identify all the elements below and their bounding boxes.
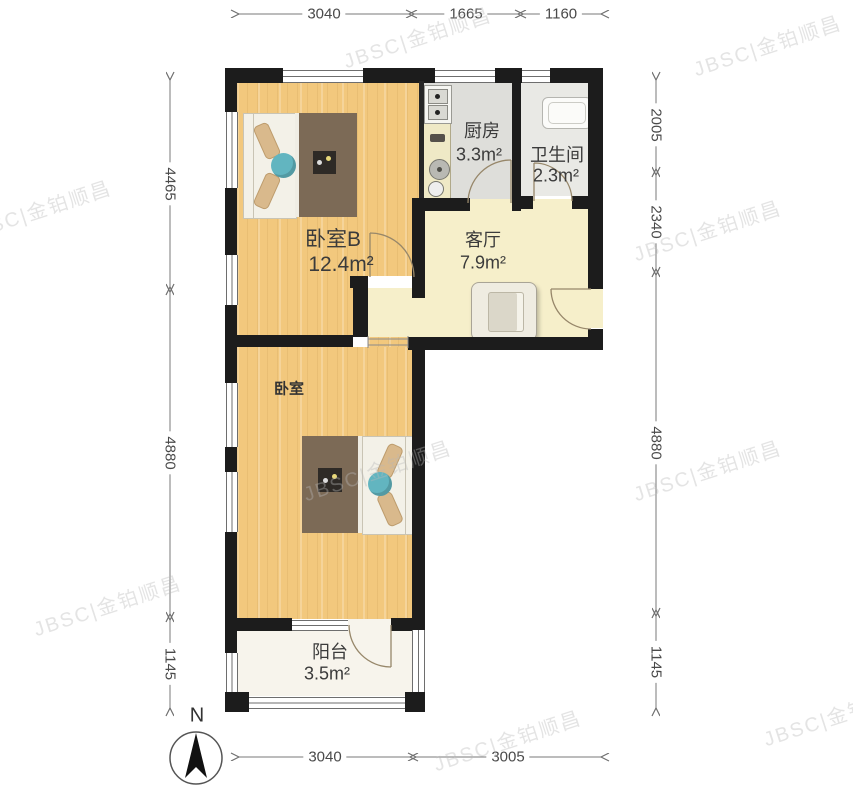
dim-top-2: 1665: [444, 6, 487, 23]
dim-bottom-1: 3040: [303, 749, 346, 766]
dim-right-2: 2340: [648, 200, 665, 243]
bedroom-b-area: 12.4m²: [308, 253, 373, 277]
plan-linework: [0, 0, 853, 792]
living-room-area: 7.9m²: [460, 253, 506, 274]
kitchen-area: 3.3m²: [456, 145, 502, 166]
dim-left-1: 4465: [162, 162, 179, 205]
dimension-lines: [170, 14, 656, 757]
dim-right-1: 2005: [648, 103, 665, 146]
kitchen-label: 厨房: [464, 117, 500, 143]
living-room-label: 客厅: [465, 226, 501, 252]
north-arrow: [170, 732, 222, 784]
dim-left-2: 4880: [162, 431, 179, 474]
bathroom-label: 卫生间: [530, 141, 584, 167]
balcony-label: 阳台: [312, 638, 348, 664]
dim-top-3: 1160: [540, 6, 582, 23]
dim-right-4: 1145: [648, 641, 665, 683]
dim-bottom-2: 3005: [486, 749, 529, 766]
dim-right-3: 4880: [648, 421, 665, 464]
floor-plan: 卧室B 12.4m² 厨房 3.3m² 卫生间 2.3m² 客厅 7.9m² 卧…: [0, 0, 853, 792]
balcony-area: 3.5m²: [304, 664, 350, 685]
bedroom-label: 卧室: [274, 378, 304, 399]
dim-top-1: 3040: [302, 6, 345, 23]
compass-n-label: N: [190, 705, 204, 728]
dim-left-3: 1145: [162, 643, 179, 685]
bathroom-area: 2.3m²: [533, 166, 579, 187]
wall-opening: [368, 336, 408, 348]
bedroom-b-label: 卧室B: [305, 223, 361, 253]
